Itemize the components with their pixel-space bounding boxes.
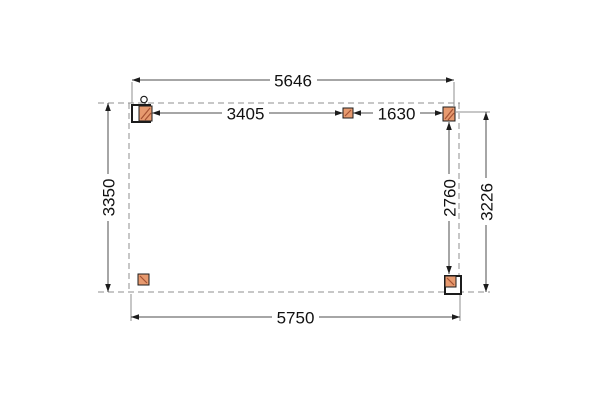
post-top-middle	[343, 108, 353, 118]
arrow-down-icon	[483, 284, 489, 292]
dim-value-bottom-total: 5750	[277, 309, 315, 328]
arrow-up-icon	[105, 103, 111, 111]
dimension-bottom-total: 5750	[131, 308, 460, 328]
arrow-right-icon	[446, 77, 454, 83]
dim-value-left-depth: 3350	[100, 179, 119, 217]
arrow-left-icon	[353, 110, 361, 116]
arrow-right-icon	[335, 110, 343, 116]
arrow-right-icon	[452, 314, 460, 320]
dim-value-right-total-depth: 3226	[478, 183, 497, 221]
dimension-right-post-depth: 2760	[440, 122, 460, 274]
arrow-right-icon	[435, 110, 443, 116]
dimension-top-span-left: 3405	[152, 104, 343, 124]
post-top-right	[443, 107, 455, 121]
arrow-up-icon	[446, 122, 452, 130]
roof-outline-dashed	[98, 103, 490, 292]
arrow-down-icon	[446, 266, 452, 274]
post-bottom-left	[138, 274, 149, 285]
arrow-down-icon	[105, 284, 111, 292]
dimension-left-depth: 3350	[99, 103, 119, 292]
floor-plan-drawing: 5646 3405 1630 3350 2760 3226	[0, 0, 600, 400]
corner-markers	[132, 105, 461, 294]
blueprint-canvas: 5646 3405 1630 3350 2760 3226	[0, 0, 600, 400]
dim-value-top-span-right: 1630	[378, 105, 416, 124]
arrow-left-icon	[131, 314, 139, 320]
drain-circle-icon	[141, 96, 147, 102]
arrow-left-icon	[152, 110, 160, 116]
dim-value-right-post-depth: 2760	[441, 179, 460, 217]
dimension-top-total: 5646	[132, 71, 454, 91]
extension-lines	[131, 82, 490, 321]
dimension-right-total-depth: 3226	[477, 112, 497, 292]
dim-value-top-span-left: 3405	[227, 105, 265, 124]
dim-value-top-total: 5646	[274, 72, 312, 91]
arrow-left-icon	[132, 77, 140, 83]
post-bottom-right	[445, 276, 456, 287]
dimension-top-span-right: 1630	[353, 104, 443, 124]
posts	[138, 106, 456, 287]
post-top-left	[139, 106, 152, 121]
arrow-up-icon	[483, 112, 489, 120]
